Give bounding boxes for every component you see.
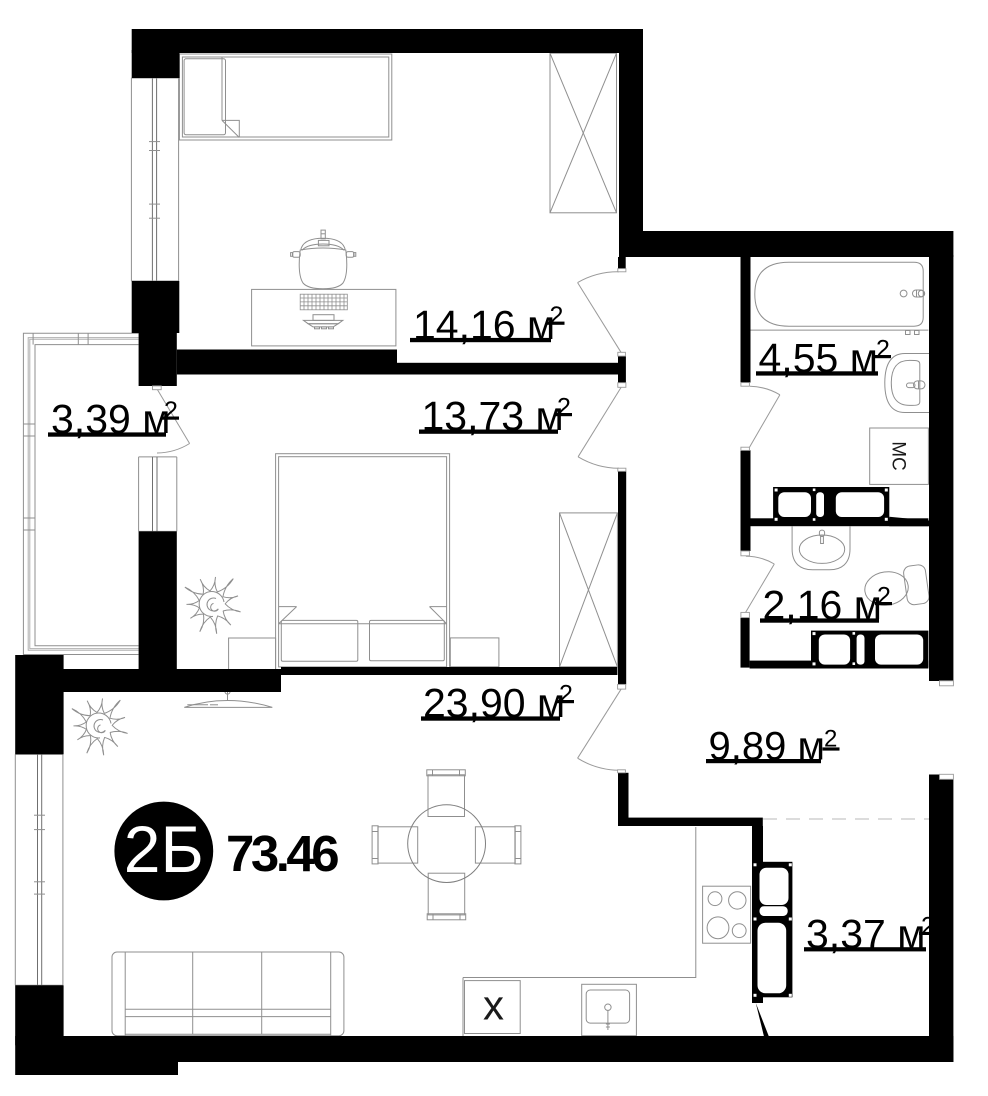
svg-text:2: 2 — [877, 583, 891, 611]
svg-text:73.46: 73.46 — [226, 825, 338, 882]
svg-text:МС: МС — [888, 441, 909, 471]
svg-text:x: x — [483, 982, 504, 1029]
svg-text:2: 2 — [876, 336, 890, 364]
svg-text:2: 2 — [550, 302, 564, 330]
svg-text:2: 2 — [557, 394, 571, 422]
svg-text:2Б: 2Б — [124, 812, 204, 886]
svg-text:2: 2 — [164, 397, 178, 425]
svg-text:2: 2 — [559, 681, 573, 709]
